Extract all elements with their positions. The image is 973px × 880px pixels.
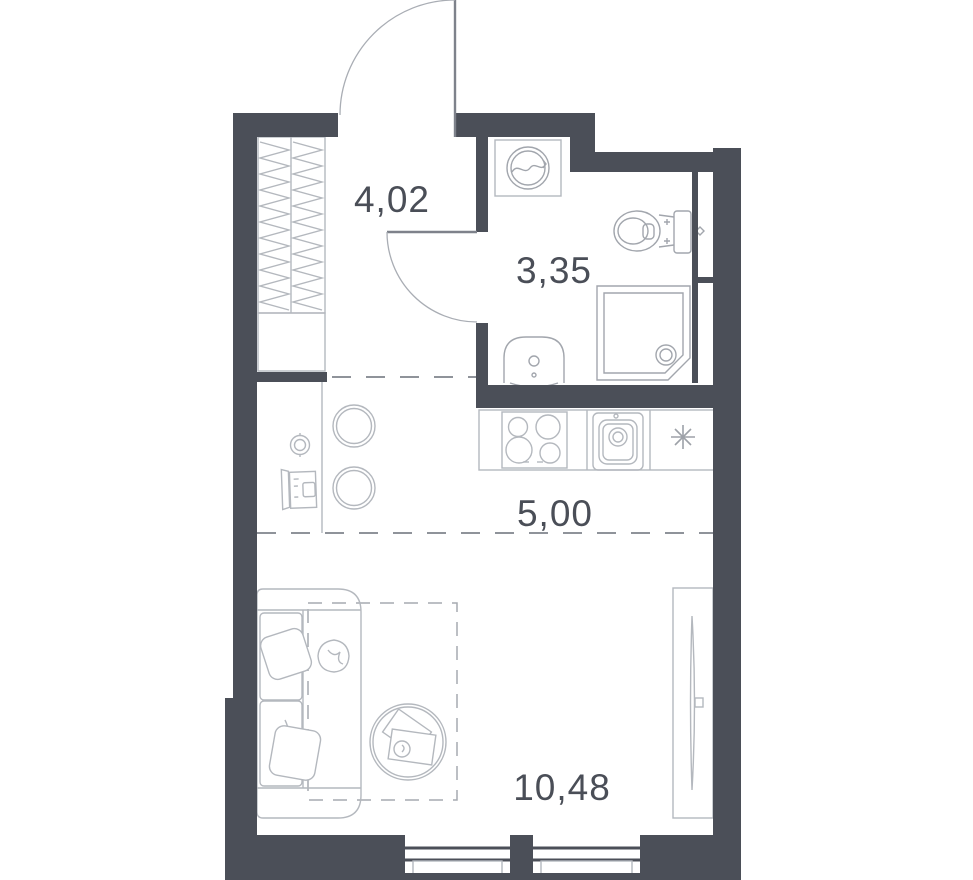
stool-2-inner <box>337 471 372 506</box>
kitchen-left-zone <box>281 382 375 533</box>
hallway-furniture <box>258 137 325 371</box>
stool-1-inner <box>337 409 372 444</box>
wardrobe-hatch-left <box>260 142 289 310</box>
wall-bottom-left <box>225 835 405 880</box>
washing-machine-icon <box>495 140 561 196</box>
doors <box>340 0 477 322</box>
table-cup <box>394 741 410 757</box>
wall-left-upper <box>233 113 257 698</box>
shower-icon <box>597 286 690 380</box>
wall-hallway-stub <box>257 372 327 382</box>
kitchen-counter <box>479 410 717 470</box>
pillow-2 <box>268 724 322 781</box>
wall-duct-divider <box>692 277 713 283</box>
fridge-asterisk-icon <box>671 425 695 449</box>
bathroom-door-arc <box>387 232 477 322</box>
pillow-1 <box>258 626 313 681</box>
wall-right <box>713 148 741 880</box>
stool-2 <box>333 467 375 509</box>
wall-top-right <box>455 113 595 137</box>
entrance-door-arc <box>340 0 455 115</box>
plant-icon <box>318 640 349 672</box>
tv-mount <box>695 698 703 707</box>
hallway-area-label: 4,02 <box>354 179 430 220</box>
window-2 <box>533 835 640 880</box>
wall-light-icon <box>291 433 310 457</box>
wall-top-left <box>233 113 338 137</box>
wall-bottom-right <box>640 835 741 880</box>
tv-icon <box>281 468 316 509</box>
stove-icon <box>502 412 567 468</box>
wardrobe-hatch-right <box>293 142 322 310</box>
sofa <box>257 589 361 818</box>
window-1 <box>405 835 510 880</box>
hallway-cabinet <box>258 313 325 371</box>
floor-plan-canvas: 4,02 3,35 5,00 10,48 <box>0 0 973 880</box>
stool-1 <box>333 405 375 447</box>
kitchen-sink-icon <box>593 413 643 470</box>
wall-bathroom-bottom <box>476 385 718 408</box>
bathroom-door <box>387 232 477 322</box>
living-room-area-label: 10,48 <box>513 767 611 808</box>
counter-outline <box>479 410 717 470</box>
living-room-furniture <box>257 588 713 818</box>
tv-screen-icon <box>691 616 695 790</box>
floor-plan: 4,02 3,35 5,00 10,48 <box>0 0 973 880</box>
bathroom-area-label: 3,35 <box>516 250 592 291</box>
coffee-table <box>370 704 446 780</box>
kitchen-area-label: 5,00 <box>517 493 593 534</box>
wall-bottom-pier <box>510 835 533 880</box>
wash-basin-icon <box>504 337 564 387</box>
wall-bathroom-left-upper <box>476 137 488 232</box>
tv-unit <box>673 588 713 818</box>
toilet-icon <box>614 211 704 253</box>
room-labels: 4,02 3,35 5,00 10,48 <box>354 179 611 808</box>
entrance-door <box>340 0 455 137</box>
